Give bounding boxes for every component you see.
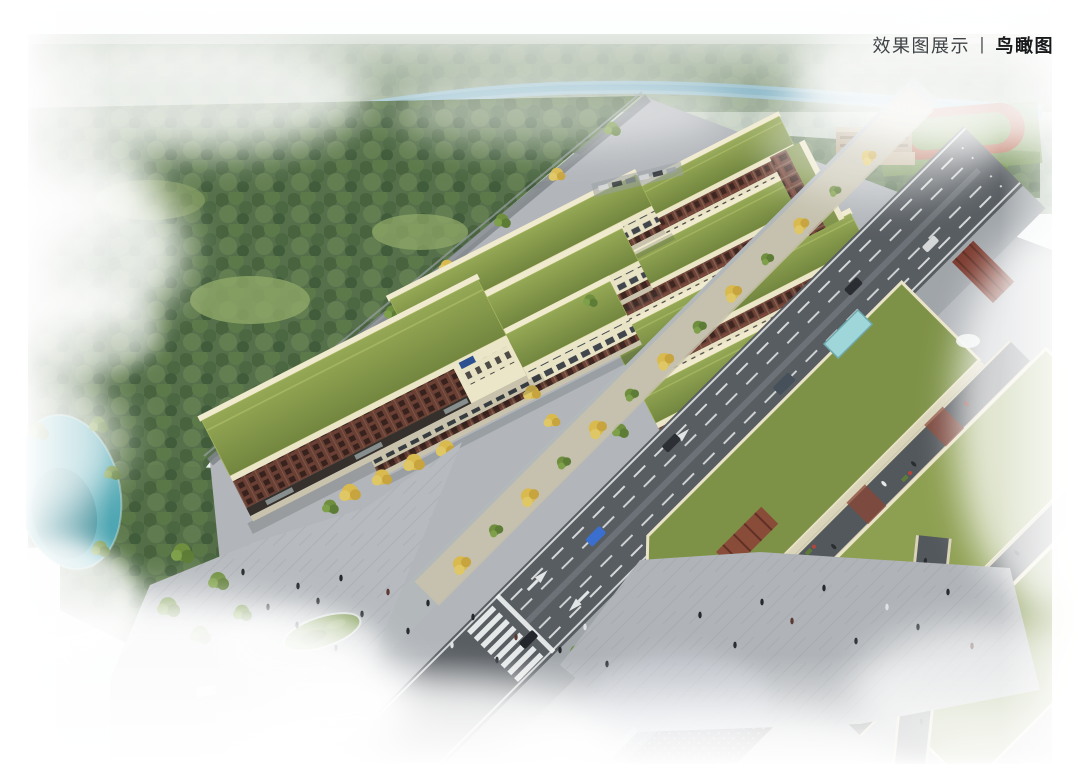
caption-prefix: 效果图展示 <box>873 36 971 56</box>
right-white-margin <box>1052 0 1080 764</box>
rendering-canvas <box>0 0 1080 764</box>
caption: 效果图展示丨鸟瞰图 <box>873 32 1055 58</box>
birdseye-rendering-page: 效果图展示丨鸟瞰图 <box>0 0 1080 764</box>
caption-title: 鸟瞰图 <box>996 36 1055 56</box>
left-white-margin <box>0 0 26 764</box>
left-fade <box>26 0 111 764</box>
meadow-clearing <box>190 276 310 324</box>
bottom-fade <box>0 655 1080 764</box>
caption-separator: 丨 <box>973 36 993 56</box>
